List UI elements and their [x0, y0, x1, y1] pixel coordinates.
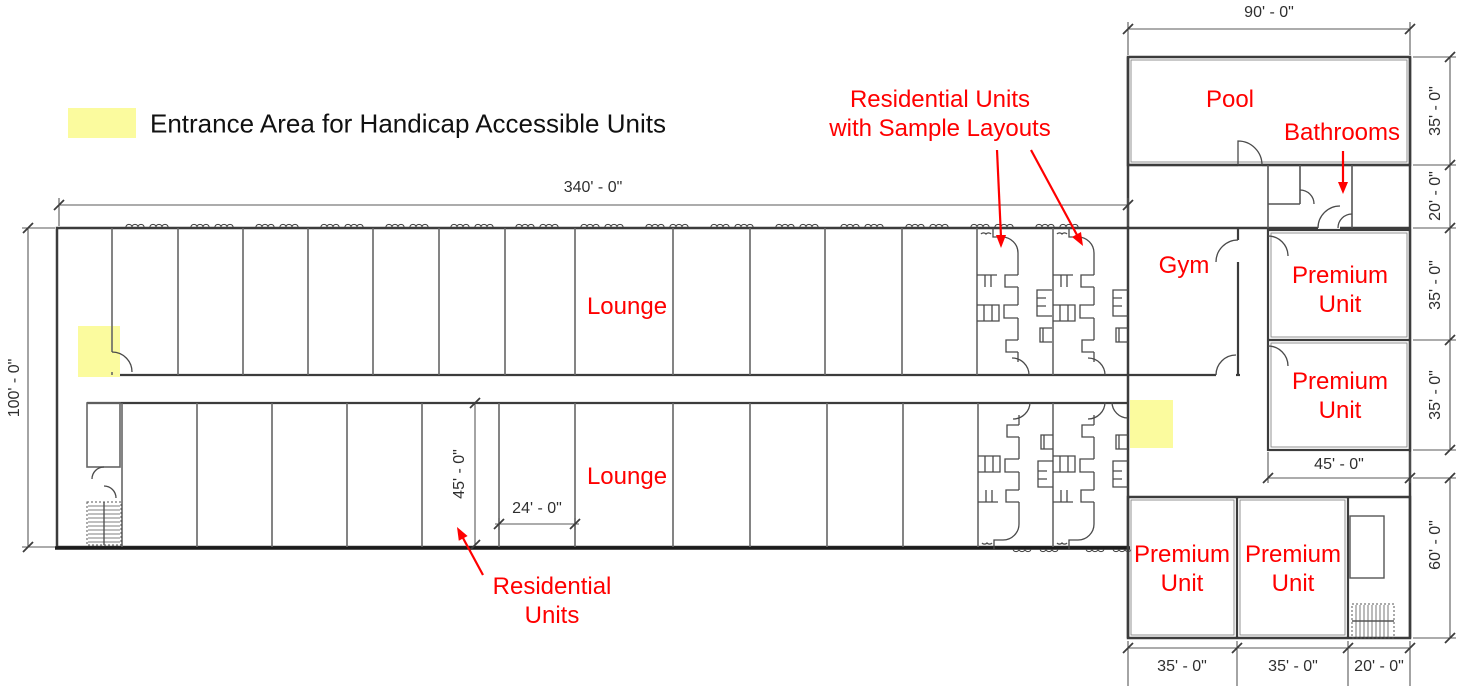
annotation-sample-units-line1: Residential Units: [829, 85, 1050, 114]
premium-b1-line1: Premium: [1134, 540, 1230, 569]
premium-2-line2: Unit: [1292, 396, 1388, 425]
premium-b1-line2: Unit: [1134, 569, 1230, 598]
dim-main-width: 340' - 0": [564, 179, 623, 197]
bottom-row-unit-dividers: [87, 403, 1053, 547]
premium-b2-line1: Premium: [1245, 540, 1341, 569]
floor-plan-page: Entrance Area for Handicap Accessible Un…: [0, 0, 1462, 689]
legend-label: Entrance Area for Handicap Accessible Un…: [150, 109, 666, 140]
arrow-sample-unit-2: [1031, 150, 1077, 235]
legend-highlight-swatch: [68, 108, 136, 138]
room-label-pool: Pool: [1206, 86, 1254, 114]
dim-bottom-premium-2: 35' - 0": [1268, 658, 1318, 676]
room-label-premium-bottom-1: Premium Unit: [1134, 540, 1230, 598]
annotation-residential-units: Residential Units: [493, 572, 612, 630]
stair-left: [87, 502, 121, 545]
room-label-gym: Gym: [1159, 252, 1210, 280]
dim-premium-right-2: 35' - 0": [1427, 370, 1445, 420]
stair-right: [1352, 604, 1394, 638]
arrow-residential-units: [463, 538, 483, 575]
annotation-residential-line2: Units: [493, 601, 612, 630]
dim-premium-col-width: 45' - 0": [1314, 456, 1364, 474]
dim-pool-depth: 35' - 0": [1427, 86, 1445, 136]
premium-1-line1: Premium: [1292, 261, 1388, 290]
premium-2-line1: Premium: [1292, 367, 1388, 396]
annotation-sample-units: Residential Units with Sample Layouts: [829, 85, 1050, 143]
room-label-premium-1: Premium Unit: [1292, 261, 1388, 319]
dim-bottom-stair-width: 20' - 0": [1354, 658, 1404, 676]
annotation-residential-line1: Residential: [493, 572, 612, 601]
room-label-premium-2: Premium Unit: [1292, 367, 1388, 425]
dim-wing-width: 90' - 0": [1244, 4, 1294, 22]
dim-main-height: 100' - 0": [6, 359, 24, 418]
premium-1-line2: Unit: [1292, 290, 1388, 319]
dim-unit-width: 24' - 0": [512, 500, 562, 518]
room-label-lounge-top: Lounge: [587, 293, 667, 321]
dim-unit-depth: 45' - 0": [451, 449, 469, 499]
top-row-unit-dividers: [112, 228, 1053, 375]
dim-premium-right-1: 35' - 0": [1427, 260, 1445, 310]
main-building-walls: [55, 228, 1240, 548]
annotation-sample-units-line2: with Sample Layouts: [829, 114, 1050, 143]
dim-bottom-premium-1: 35' - 0": [1157, 658, 1207, 676]
room-label-lounge-bottom: Lounge: [587, 463, 667, 491]
room-label-bathrooms: Bathrooms: [1284, 119, 1400, 147]
top-wall-scallops: [126, 224, 1078, 227]
dim-bath-depth: 20' - 0": [1427, 171, 1445, 221]
room-label-premium-bottom-2: Premium Unit: [1245, 540, 1341, 598]
premium-b2-line2: Unit: [1245, 569, 1341, 598]
entrance-highlight-right: [1130, 400, 1173, 448]
dim-wing-bottom-height: 60' - 0": [1427, 520, 1445, 570]
